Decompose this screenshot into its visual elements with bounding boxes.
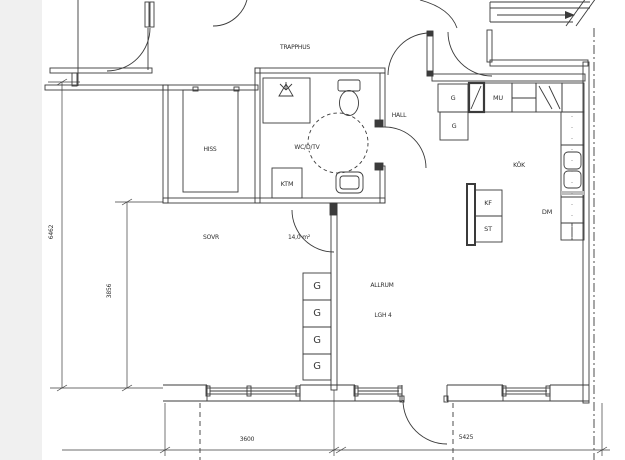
sink-basin: [564, 152, 581, 169]
wc-door-arc: [385, 127, 426, 168]
balcony-door-arc: [403, 400, 447, 444]
fixture-label-kf: KF: [484, 200, 492, 207]
wardrobe-label-g: G: [313, 309, 321, 319]
wardrobe-label-g: G: [313, 336, 321, 346]
room-label-hall: HALL: [392, 113, 407, 119]
dimension-lines: [48, 79, 610, 456]
floor-plan-sheet: TRAPPHUS HISS WC/D/TV HALL KÖK SOVR 14,0…: [0, 0, 625, 460]
sovr-door-arc: [292, 210, 334, 252]
sink-basin: [564, 171, 581, 188]
room-label-sovr: SOVR: [203, 235, 219, 241]
room-label-allrum: ALLRUM: [370, 283, 393, 289]
fixture-label-mu: MU: [493, 95, 503, 102]
wardrobe-label-g: G: [313, 282, 321, 292]
dimension-total-height: 6462: [49, 225, 55, 239]
dimension-partial-height: 3856: [107, 284, 113, 298]
toilet-tank: [338, 80, 360, 91]
entrance-door-arc: [388, 33, 430, 75]
fixture-label-g: G: [451, 95, 456, 102]
toilet-bowl: [340, 91, 359, 116]
room-label-trapphus: TRAPPHUS: [280, 45, 310, 51]
room-label-wc: WC/D/TV: [293, 145, 320, 151]
floor-plan-drawing: [0, 0, 625, 460]
room-label-kok: KÖK: [513, 163, 525, 169]
dimension-bottom-left: 3600: [240, 437, 254, 443]
entrance-door-leaf: [427, 32, 433, 76]
wardrobe-label-g: G: [313, 362, 321, 372]
fixture-label-st: ST: [484, 226, 492, 233]
elevator-car: [183, 90, 238, 192]
room-label-hiss: HISS: [203, 147, 216, 153]
apartment-number-label: LGH 4: [374, 313, 391, 319]
kf-st-unit: [467, 184, 475, 245]
room-area-sovr: 14,0 m²: [288, 235, 310, 241]
fixture-label-g: G: [452, 123, 457, 130]
turning-circle: [308, 113, 368, 173]
dimension-bottom-right: 5425: [459, 435, 473, 441]
fixture-label-dm: DM: [542, 209, 552, 216]
fixture-label-ktm: KTM: [281, 181, 294, 188]
